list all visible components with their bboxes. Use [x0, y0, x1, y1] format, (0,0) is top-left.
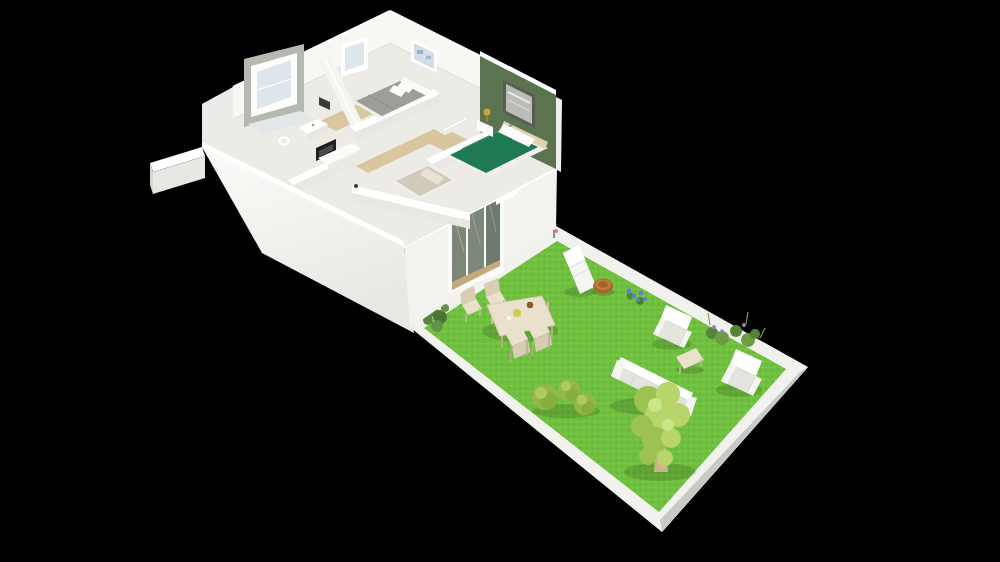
basket: [527, 302, 533, 308]
floorplan-render: [0, 0, 1000, 562]
bowl: [513, 309, 521, 317]
render-canvas: [0, 0, 1000, 562]
